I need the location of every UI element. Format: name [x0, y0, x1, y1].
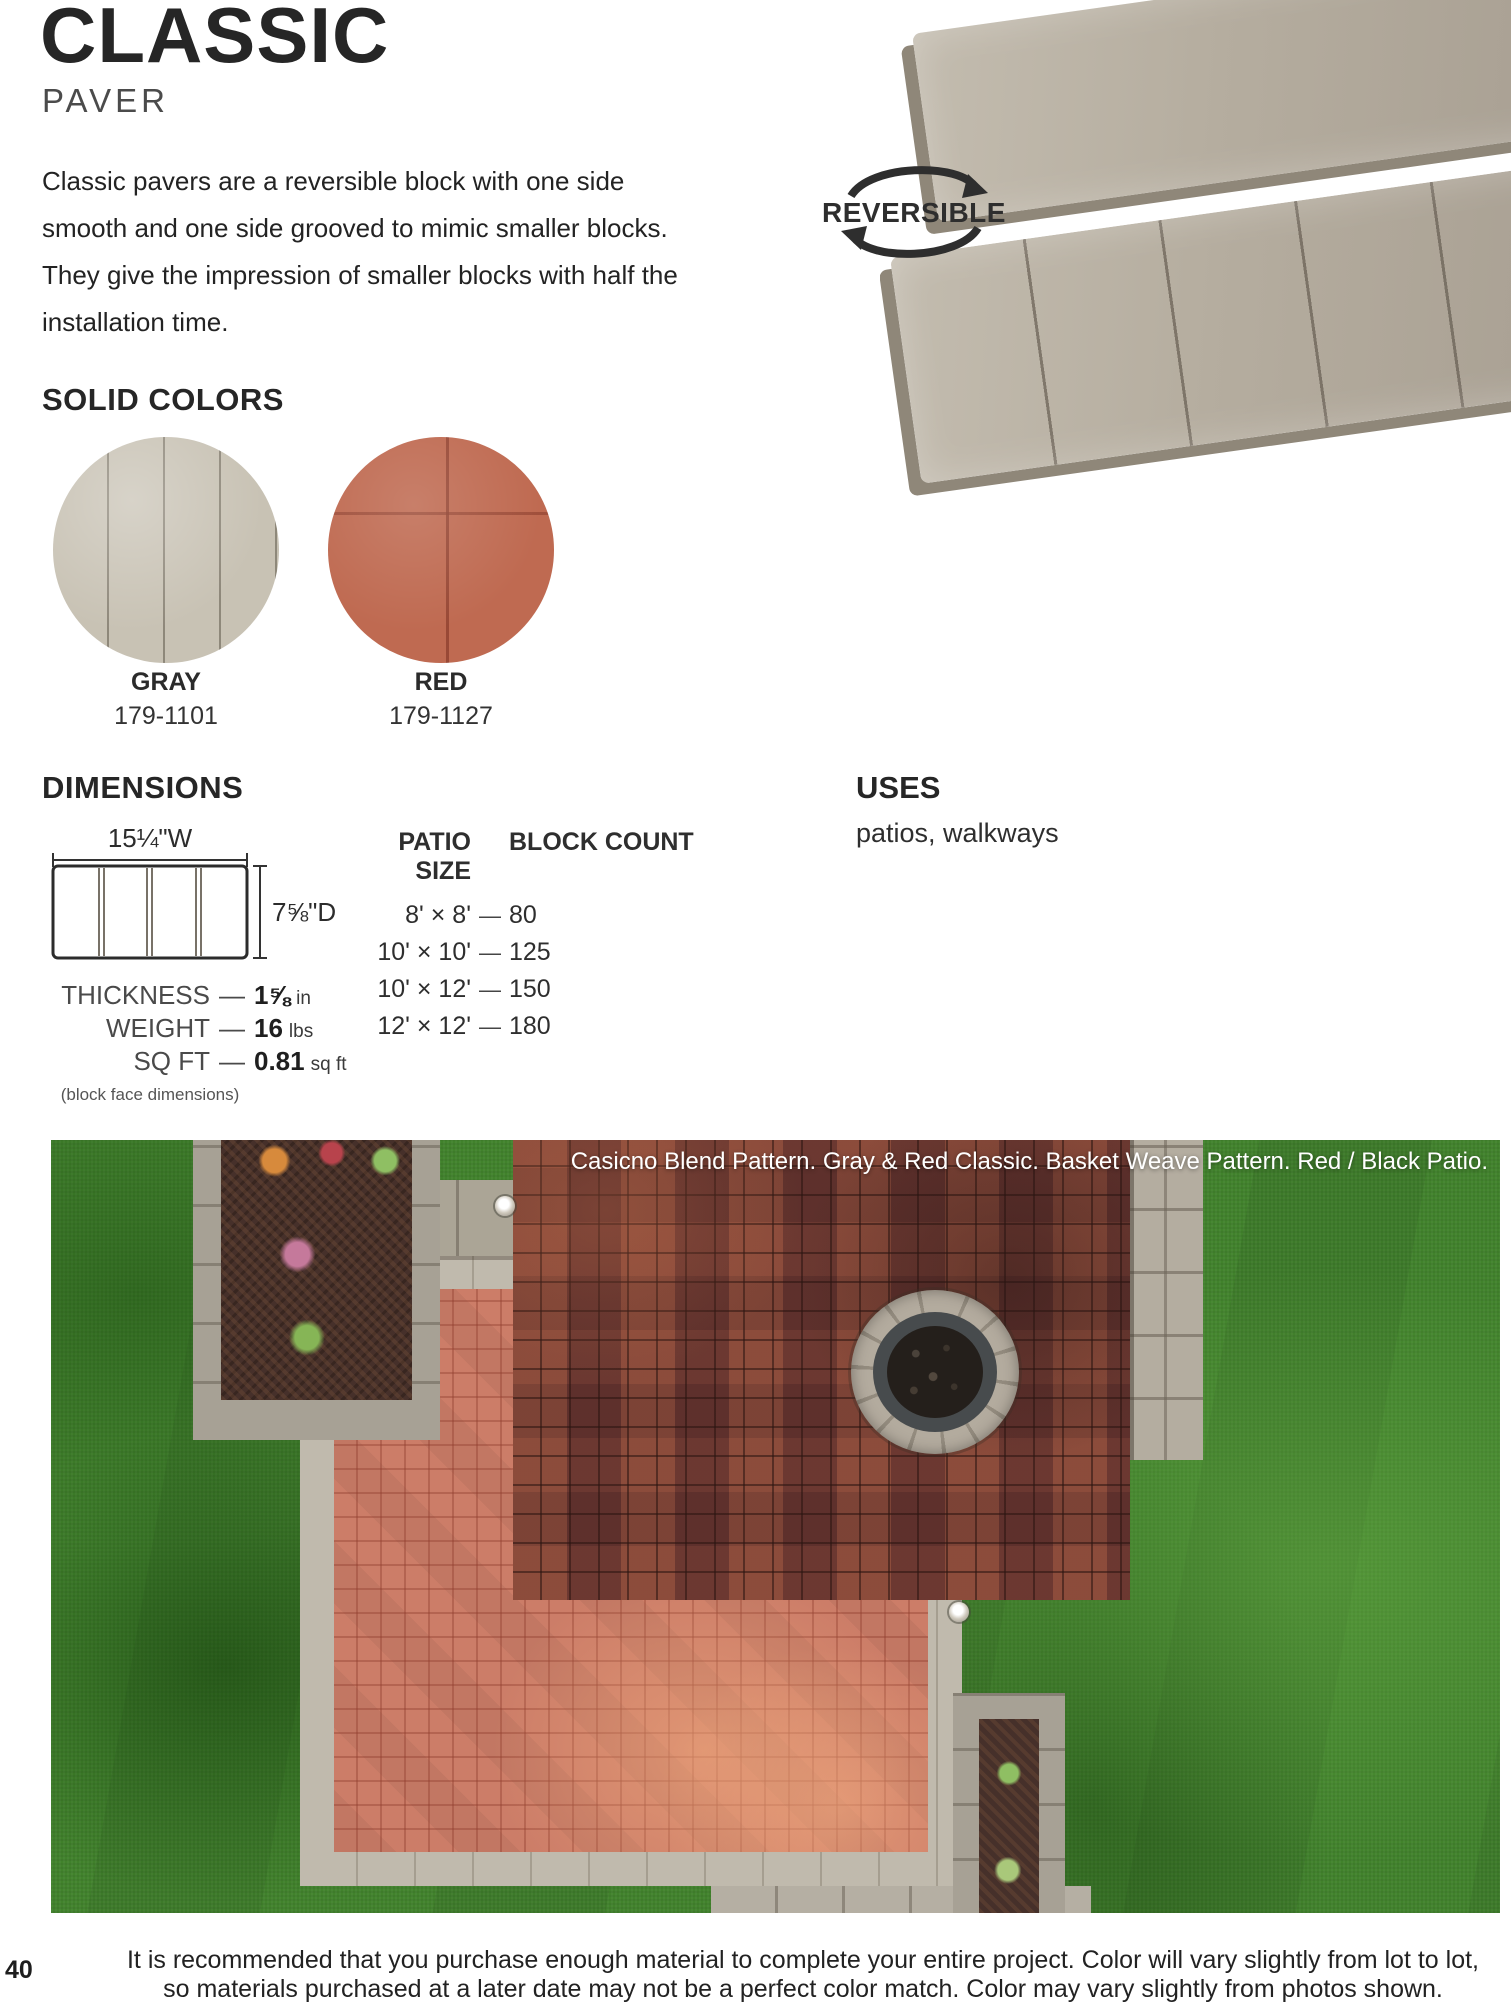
spec-label: WEIGHT — [42, 1013, 210, 1044]
page-number: 40 — [5, 1956, 33, 1985]
swatch-code-gray: 179-1101 — [53, 702, 279, 731]
spec-unit: in — [296, 988, 311, 1010]
footer-disclaimer-line1: It is recommended that you purchase enou… — [95, 1946, 1511, 1975]
patio-size: 10' × 10' — [363, 938, 471, 967]
spec-thickness: THICKNESS — 1⅝ in — [42, 980, 347, 1013]
patio-table-header: PATIO SIZE BLOCK COUNT — [363, 828, 694, 886]
spec-note: (block face dimensions) — [30, 1085, 270, 1105]
spec-weight: WEIGHT — 16 lbs — [42, 1013, 347, 1046]
solid-colors-heading: SOLID COLORS — [42, 382, 284, 418]
row-dash: — — [471, 903, 509, 929]
block-count: 125 — [509, 938, 551, 967]
block-count: 80 — [509, 901, 537, 930]
col-patio-size: PATIO SIZE — [363, 828, 471, 886]
table-row: 10' × 10' — 125 — [363, 934, 694, 971]
row-dash: — — [471, 977, 509, 1003]
casino-blend-patio — [513, 1140, 1130, 1600]
spec-unit: lbs — [289, 1021, 313, 1043]
planter-top-left — [193, 1140, 440, 1440]
block-count: 150 — [509, 975, 551, 1004]
patio-size: 12' × 12' — [363, 1012, 471, 1041]
spec-value: 1⅝ — [254, 980, 290, 1011]
table-row: 10' × 12' — 150 — [363, 971, 694, 1008]
yard-light-icon — [495, 1196, 515, 1216]
spec-dash: — — [219, 1013, 245, 1044]
patio-size: 8' × 8' — [363, 901, 471, 930]
row-dash: — — [471, 940, 509, 966]
gray-block-wall — [1130, 1140, 1203, 1460]
reversible-label: REVERSIBLE — [822, 197, 1006, 228]
color-swatch-gray — [53, 437, 279, 663]
spec-sqft: SQ FT — 0.81 sq ft — [42, 1046, 347, 1079]
yard-light-icon — [949, 1602, 969, 1622]
spec-label: THICKNESS — [42, 980, 210, 1011]
block-dimension-diagram: 15¼"W 7⅝"D — [40, 820, 350, 980]
table-row: 8' × 8' — 80 — [363, 897, 694, 934]
planter-bottom-right — [953, 1693, 1065, 1913]
spec-list: THICKNESS — 1⅝ in WEIGHT — 16 lbs SQ FT … — [42, 980, 347, 1079]
patio-table: PATIO SIZE BLOCK COUNT 8' × 8' — 80 10' … — [363, 828, 694, 1045]
photo-caption: Casicno Blend Pattern. Gray & Red Classi… — [571, 1148, 1488, 1176]
swatch-name-gray: GRAY — [53, 668, 279, 697]
fire-pit-coals — [887, 1326, 983, 1418]
swatch-code-red: 179-1127 — [328, 702, 554, 731]
row-dash: — — [471, 1014, 509, 1040]
spec-dash: — — [219, 1046, 245, 1077]
reversible-arrows-icon: REVERSIBLE — [818, 136, 1013, 278]
swatch-name-red: RED — [328, 668, 554, 697]
block-count: 180 — [509, 1012, 551, 1041]
color-swatch-red — [328, 437, 554, 663]
dimensions-heading: DIMENSIONS — [42, 770, 243, 806]
depth-dimension-label: 7⅝"D — [272, 897, 336, 927]
fire-pit — [851, 1290, 1019, 1454]
table-row: 12' × 12' — 180 — [363, 1008, 694, 1045]
page-subtitle: PAVER — [42, 82, 169, 120]
uses-text: patios, walkways — [856, 818, 1059, 849]
product-description: Classic pavers are a reversible block wi… — [42, 158, 682, 346]
patio-size: 10' × 12' — [363, 975, 471, 1004]
width-dimension-label: 15¼"W — [108, 823, 193, 853]
spec-value: 16 — [254, 1013, 283, 1044]
uses-heading: USES — [856, 770, 940, 806]
patio-aerial-photo: Casicno Blend Pattern. Gray & Red Classi… — [51, 1140, 1500, 1913]
spec-unit: sq ft — [311, 1054, 347, 1076]
planter-mulch — [221, 1140, 412, 1400]
spec-value: 0.81 — [254, 1046, 305, 1077]
col-block-count: BLOCK COUNT — [509, 828, 694, 886]
page-title: CLASSIC — [40, 0, 389, 80]
spec-dash: — — [219, 980, 245, 1011]
planter-mulch — [979, 1719, 1039, 1913]
spec-label: SQ FT — [42, 1046, 210, 1077]
